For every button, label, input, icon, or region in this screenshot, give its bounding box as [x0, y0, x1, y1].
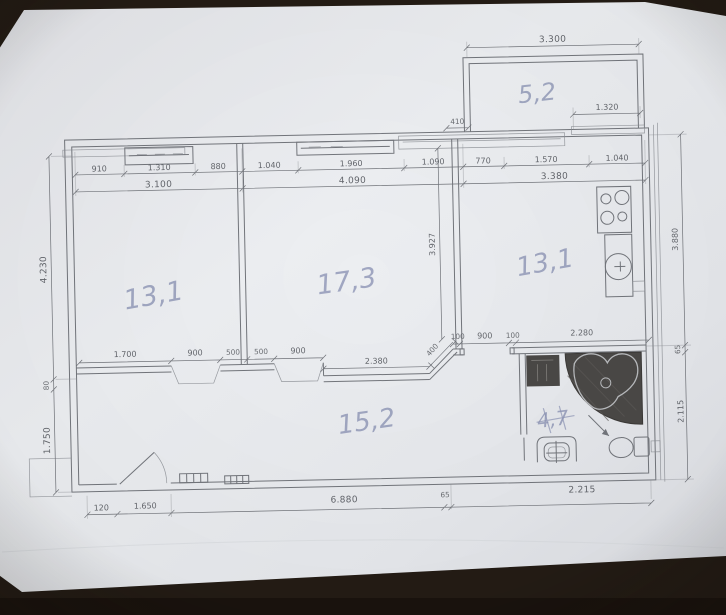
photo-canvas: 910 1.310 880 1.040 1.960 1.090 770 1.57… — [0, 0, 726, 615]
floor-plan-photo: 910 1.310 880 1.040 1.960 1.090 770 1.57… — [0, 0, 726, 615]
photo-vignette — [0, 0, 726, 615]
